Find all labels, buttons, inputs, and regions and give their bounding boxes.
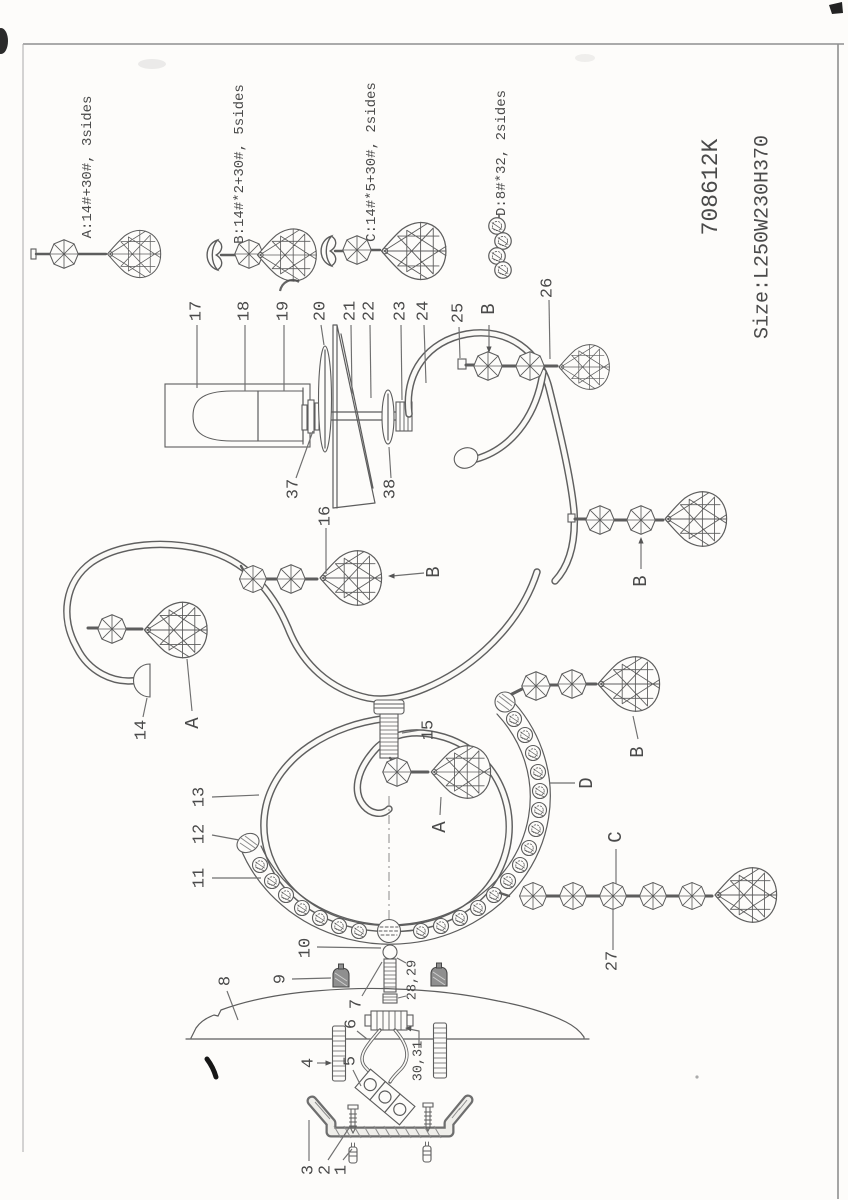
legend-label-a: A:14#+30#, 3sides xyxy=(80,96,96,239)
legend-item-d: D:8#*32, 2sides xyxy=(489,90,512,278)
callout-a-center: A xyxy=(429,821,451,833)
callout-23: 23 xyxy=(392,301,411,321)
center-scroll-ring xyxy=(264,700,509,929)
size-label: Size:L250W230H370 xyxy=(752,135,775,339)
callout-26: 26 xyxy=(539,278,558,298)
legend-item-b: B:14#*2+30#, 5sides xyxy=(207,84,316,281)
callout-6: 6 xyxy=(343,1019,362,1029)
callout-14: 14 xyxy=(133,720,152,740)
callout-b-right-upper: B xyxy=(630,575,652,586)
ball-joint-10 xyxy=(378,920,401,1004)
legend: A:14#+30#, 3sides B:14#*2+30#, 5sides C:… xyxy=(31,82,511,281)
callout-7: 7 xyxy=(348,999,367,1009)
legend-item-c: C:14#*5+30#, 2sides xyxy=(321,82,446,280)
callout-37: 37 xyxy=(285,479,304,499)
callout-16: 16 xyxy=(317,506,336,526)
callout-19: 19 xyxy=(275,301,294,321)
wall-mount-assembly xyxy=(186,963,589,1163)
crystal-strand-c xyxy=(500,868,777,923)
crystal-strand-b-right-lower xyxy=(512,657,660,712)
callout-28-29: 28,29 xyxy=(406,960,421,1001)
callout-30-31: 30,31 xyxy=(412,1041,427,1082)
channel-beads xyxy=(253,712,548,939)
model-number: 708612K xyxy=(698,138,724,235)
scan-mark-corner xyxy=(829,2,843,14)
legend-label-d: D:8#*32, 2sides xyxy=(494,90,510,216)
terminal-block xyxy=(355,1069,415,1125)
callout-22: 22 xyxy=(361,301,380,321)
callout-5: 5 xyxy=(342,1056,361,1066)
callout-21: 21 xyxy=(342,301,361,321)
shade-cone xyxy=(333,325,375,508)
title-block: 708612K Size:L250W230H370 xyxy=(698,135,775,339)
legend-item-a: A:14#+30#, 3sides xyxy=(31,96,161,278)
callout-13: 13 xyxy=(191,787,210,807)
callout-12: 12 xyxy=(191,824,210,844)
callout-18: 18 xyxy=(236,301,255,321)
callout-15: 15 xyxy=(420,720,439,740)
junction-box xyxy=(365,1011,413,1030)
callout-a-left: A xyxy=(182,717,204,729)
end-cap-14 xyxy=(134,664,151,697)
legend-label-c: C:14#*5+30#, 2sides xyxy=(364,82,380,242)
channel-end-cap-12 xyxy=(234,830,263,857)
callout-20: 20 xyxy=(312,301,331,321)
callout-27: 27 xyxy=(604,951,623,971)
callout-c: C xyxy=(605,831,627,842)
left-scroll-arm xyxy=(67,544,537,699)
assembly-diagram: 708612K Size:L250W230H370 A:14#+30#, 3si… xyxy=(0,0,848,1200)
callout-b-mid: B xyxy=(423,566,445,577)
callout-25: 25 xyxy=(450,303,469,323)
scan-mark-pen-curve xyxy=(280,280,299,291)
callout-b-right-lower: B xyxy=(627,746,649,757)
callout-11: 11 xyxy=(191,868,210,888)
callout-9: 9 xyxy=(272,974,291,984)
crystal-strand-16-b xyxy=(240,551,382,606)
scan-mark-left-edge xyxy=(0,28,8,54)
crystal-strand-b-right-upper xyxy=(568,492,727,547)
callout-8: 8 xyxy=(217,976,236,986)
legend-label-b: B:14#*2+30#, 5sides xyxy=(232,84,248,244)
callout-17: 17 xyxy=(188,301,207,321)
callout-4: 4 xyxy=(300,1058,319,1068)
callout-b-top: B xyxy=(478,303,500,314)
callout-24: 24 xyxy=(415,301,434,321)
crystal-strand-a-center xyxy=(383,746,491,799)
crystal-strand-a-left xyxy=(88,602,207,658)
scan-mark-slash xyxy=(207,1059,216,1077)
callout-38: 38 xyxy=(382,479,401,499)
callout-d: D xyxy=(576,777,598,788)
callout-1: 1 xyxy=(333,1165,352,1175)
scanned-assembly-sheet: 708612K Size:L250W230H370 A:14#+30#, 3si… xyxy=(0,0,848,1200)
crystal-strand-26-b xyxy=(458,345,609,390)
callout-10: 10 xyxy=(297,938,316,958)
